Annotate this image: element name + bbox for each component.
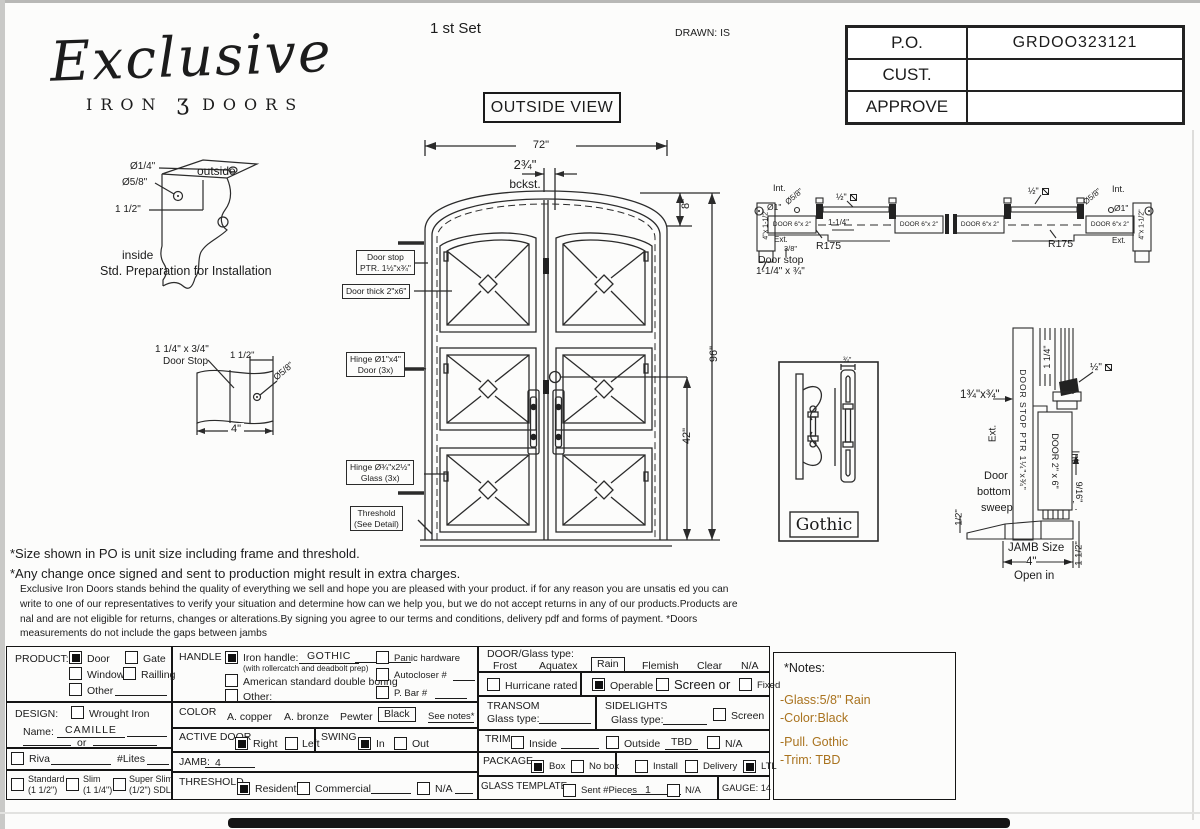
set-label: 1 st Set (430, 20, 481, 37)
transom-glass-blank (539, 713, 591, 724)
doorstop-width-label: 4" (228, 423, 244, 435)
package-label: PACKAGE (483, 755, 533, 767)
swing-label: SWING (321, 731, 357, 743)
po-label: P.O. (847, 27, 967, 59)
panic-option: Panic hardware (394, 653, 460, 664)
approve-label: APPROVE (847, 91, 967, 123)
super-slim-checkbox (113, 778, 126, 791)
product-other-option: Other (87, 685, 113, 697)
glass-type-section: DOOR/Glass type: Frost Aquatex Rain Flem… (478, 646, 770, 672)
trim-outside-checkbox (606, 736, 619, 749)
riva-blank (51, 754, 111, 765)
super-slim-option: Super Slim (129, 774, 173, 784)
trim-na-checkbox (707, 736, 720, 749)
threshold-section: THRESHOLD Residential Commercial N/A (172, 772, 478, 800)
threshold-callout: Threshold(See Detail) (350, 506, 403, 531)
package-nobox-checkbox (571, 760, 584, 773)
plan-doorstop-label-2: 1-1/4" x ¾" (756, 266, 805, 277)
operable-checkbox (592, 678, 605, 691)
cust-value (967, 59, 1183, 91)
operable-section: Operable Screen or Fixed (581, 672, 770, 696)
lites-label: #Lites (117, 753, 145, 765)
autocloser-option: Autocloser # (394, 670, 447, 681)
product-gate-option: Gate (143, 653, 166, 665)
plan-door-box-3: DOOR 6"x 2" (956, 221, 1004, 228)
jamb-int-label: Int. (1070, 445, 1081, 471)
trim-outside-value: TBD (665, 736, 698, 750)
jamb-dim-134: 1¾"x¾" (960, 389, 1000, 401)
sidelights-screen-option: Screen (731, 710, 764, 722)
handle-section: HANDLE Iron handle: GOTHIC (with rollerc… (172, 646, 478, 702)
threshold-na-blank (455, 783, 473, 794)
transom-label: TRANSOM (487, 700, 540, 712)
pbar-checkbox (376, 686, 389, 699)
hinge-door-callout: Hinge Ø1"x4"Door (3x) (346, 352, 405, 377)
commercial-blank (371, 783, 411, 794)
color-section: COLOR A. copper A. bronze Pewter Black S… (172, 702, 478, 728)
doorstop-name-label: Door Stop (163, 356, 208, 367)
hurricane-checkbox (487, 678, 500, 691)
standard-checkbox (11, 778, 24, 791)
trim-inside-checkbox (511, 736, 524, 749)
or-dash-right (93, 735, 157, 746)
handle-label: HANDLE (179, 651, 222, 663)
delivery-checkbox (685, 760, 698, 773)
standard-sub: (1 1/2") (28, 785, 57, 795)
jamb-strip-label: DOOR STOP PTR 1¼"x¾" (1018, 330, 1028, 530)
trim-na-option: N/A (725, 738, 743, 750)
active-left-checkbox (285, 737, 298, 750)
corner-outside-label: outside (197, 164, 236, 178)
corner-dia-fiveeighths: Ø5/8" (122, 177, 147, 188)
cust-label: CUST. (847, 59, 967, 91)
slim-option: Slim (83, 774, 101, 784)
glass-flemish-option: Flemish (642, 660, 679, 672)
door-stop-callout: Door stopPTR. 1½"x¾" (356, 250, 415, 275)
gauge-value: GAUGE: 14 (722, 783, 771, 793)
install-option: Install (653, 761, 678, 772)
glass-type-label: DOOR/Glass type: (487, 648, 574, 660)
po-value: GRDOO323121 (967, 27, 1183, 59)
swing-out-checkbox (394, 737, 407, 750)
sent-pieces-option: Sent #Pieces (581, 785, 637, 796)
trim-inside-option: Inside (529, 738, 557, 750)
product-other-checkbox (69, 683, 82, 696)
design-section: DESIGN: Wrought Iron Name: CAMILLE or (6, 702, 172, 748)
active-right-checkbox (235, 737, 248, 750)
iron-handle-value: GOTHIC (299, 650, 359, 664)
hurricane-section: Hurricane rated (478, 672, 581, 696)
product-label: PRODUCT: (15, 653, 69, 665)
operable-option: Operable (610, 680, 653, 692)
grid-style-section: Standard (1 1/2") Slim (1 1/4") Super Sl… (6, 770, 172, 800)
approve-value (967, 91, 1183, 123)
screen-or-option: Screen or (674, 677, 730, 692)
door-width-dim: 72" (516, 139, 566, 151)
filled-square-icon (1105, 364, 1112, 371)
color-selected-value: Black (378, 707, 416, 722)
jamb-size-label-3: Open in (1014, 570, 1054, 582)
standard-option: Standard (28, 774, 65, 784)
logo-word-doors: DOORS (202, 95, 304, 114)
disclaimer-body: Exclusive Iron Doors stands behind the q… (20, 583, 750, 642)
product-section: PRODUCT: Door Gate Window Railling Other (6, 646, 172, 702)
filled-square-icon (850, 194, 857, 201)
disclaimer-line-1: *Size shown in PO is unit size including… (10, 546, 360, 561)
notes-line-color: -Color:Black (780, 711, 848, 725)
gothic-handle-dim: ¾" (843, 357, 851, 364)
door-handle-dim: 42" (681, 419, 693, 453)
slim-sub: (1 1/4") (83, 785, 112, 795)
pbar-blank (435, 688, 467, 699)
slim-checkbox (66, 778, 79, 791)
delivery-section: Install Delivery LTL (616, 752, 770, 776)
autocloser-blank (453, 670, 475, 681)
sent-pieces-checkbox (563, 784, 576, 797)
handle-other-checkbox (225, 689, 238, 702)
plan-ext-right: Ext. (1112, 236, 1126, 245)
glass-template-section: GLASS TEMPLATE Sent #Pieces 1 N/A (478, 776, 718, 800)
product-gate-checkbox (125, 651, 138, 664)
glass-na-option: N/A (741, 660, 759, 672)
threshold-na-option: N/A (435, 783, 453, 795)
glass-frost-option: Frost (493, 660, 517, 672)
plan-r175-right: R175 (1048, 238, 1073, 250)
corner-inside-label: inside (122, 248, 153, 262)
template-na-option: N/A (685, 785, 701, 796)
outside-view-title: OUTSIDE VIEW (483, 92, 621, 123)
design-wrought-checkbox (71, 706, 84, 719)
design-label: DESIGN: (15, 708, 58, 720)
commercial-checkbox (297, 782, 310, 795)
design-wrought-option: Wrought Iron (89, 708, 150, 720)
jamb-ext-label: Ext. (988, 421, 999, 447)
glass-clear-option: Clear (697, 660, 722, 672)
scanned-order-sheet: Exclusive IRON ʒ DOORS 1 st Set DRAWN: I… (0, 0, 1200, 829)
package-nobox-option: No box (589, 761, 619, 772)
plan-dim-114: 1-1/4" (828, 218, 849, 227)
package-section: PACKAGE Box No box (478, 752, 616, 776)
product-door-checkbox (69, 651, 82, 664)
color-copper-option: A. copper (227, 711, 272, 723)
glass-aquatex-option: Aquatex (539, 660, 578, 672)
scan-shadow-bar (228, 818, 1010, 828)
notes-line-trim: -Trim: TBD (780, 753, 840, 767)
plan-r175-left: R175 (816, 240, 841, 252)
swing-section: SWING In Out (315, 728, 478, 752)
door-top-dim: 8" (680, 192, 692, 216)
commercial-option: Commercial (315, 783, 371, 795)
trim-label: TRIM (485, 733, 511, 745)
scan-edge-top (0, 0, 1200, 3)
company-logo: Exclusive IRON ʒ DOORS (50, 25, 320, 120)
color-pewter-option: Pewter (340, 711, 373, 723)
package-box-option: Box (549, 761, 565, 772)
fixed-checkbox (739, 678, 752, 691)
door-height-dim: 96" (708, 337, 720, 371)
product-other-blank (115, 685, 167, 696)
threshold-na-checkbox (417, 782, 430, 795)
handle-other-blank (275, 691, 381, 702)
jamb-dim-114: 1 1/4" (1042, 340, 1052, 374)
plan-int-left: Int. (773, 183, 786, 193)
iron-handle-option: Iron handle: (243, 652, 298, 664)
gothic-caption: Gothic (790, 515, 858, 535)
sweep-label-3: sweep (981, 502, 1013, 514)
jamb-row-blank (205, 757, 255, 768)
active-right-option: Right (253, 738, 278, 750)
plan-ext-left: Ext. (774, 235, 788, 244)
plan-half-left: ½" (836, 192, 857, 202)
product-door-option: Door (87, 653, 110, 665)
plan-half-right: ½" (1028, 186, 1049, 196)
scan-edge-left (0, 0, 5, 829)
trim-section: TRIM Inside Outside TBD N/A (478, 730, 770, 752)
trim-outside-option: Outside (624, 738, 660, 750)
template-na-checkbox (667, 784, 680, 797)
notes-line-glass: -Glass:5/8" Rain (780, 693, 871, 707)
iron-handle-checkbox (225, 651, 238, 664)
corner-dim-one-half: 1 1/2" (115, 204, 141, 215)
hurricane-option: Hurricane rated (505, 680, 577, 692)
american-boring-checkbox (225, 674, 238, 687)
doorstop-dim-one-half: 1 1/2" (230, 350, 255, 361)
jamb-size-label-1: JAMB Size (1008, 542, 1064, 554)
trim-inside-blank (561, 738, 599, 749)
jamb-door-box-label: DOOR 2" x 6" (1050, 413, 1060, 509)
lites-blank (147, 754, 169, 765)
residential-checkbox (237, 782, 250, 795)
install-checkbox (635, 760, 648, 773)
plan-jamb-right: 4"x 1-1/2" (1139, 201, 1146, 249)
color-label: COLOR (179, 706, 216, 718)
filled-square-icon (1042, 188, 1049, 195)
plan-door-box-4: DOOR 6"x 2" (1086, 221, 1134, 228)
sidelights-section: SIDELIGHTS Glass type: Screen (596, 696, 770, 730)
jamb-dim-1half: 1 1/2" (1074, 537, 1085, 571)
jamb-size-label-2: 4" (1026, 556, 1036, 568)
logo-word-iron: IRON (86, 95, 163, 114)
scan-edge-right (1192, 130, 1194, 820)
jamb-dim-916: 9/16" (1074, 475, 1084, 509)
autocloser-checkbox (376, 668, 389, 681)
sidelights-glass-blank (663, 714, 707, 725)
logo-flourish-icon: ʒ (177, 91, 189, 116)
screen-checkbox (656, 678, 669, 691)
plan-dia1-right: Ø1" (1114, 203, 1128, 213)
product-window-checkbox (69, 667, 82, 680)
iron-handle-sub: (with rollercatch and deadbolt prep) (243, 664, 368, 673)
jamb-half-label: ½" (1090, 362, 1112, 373)
scan-line-bottom (0, 812, 1200, 814)
sidelights-glass-type-label: Glass type: (611, 714, 664, 726)
or-dash-left (23, 735, 71, 746)
product-railing-option: Railling (141, 669, 175, 681)
threshold-label: THRESHOLD (179, 776, 244, 788)
plan-door-box-1: DOOR 6"x 2" (768, 221, 816, 228)
po-table: P.O. GRDOO323121 CUST. APPROVE (845, 25, 1185, 125)
plan-doorstop-label-1: Door stop (758, 254, 804, 266)
notes-line-pull: -Pull. Gothic (780, 735, 848, 749)
corner-dia-quarter: Ø1/4" (130, 161, 155, 172)
product-railing-checkbox (123, 667, 136, 680)
door-backset-sub: bckst. (495, 177, 555, 191)
sweep-label-2: bottom (977, 486, 1011, 498)
sweep-label-1: Door (984, 470, 1008, 482)
gauge-section: GAUGE: 14 (718, 776, 770, 800)
drawn-by-label: DRAWN: IS (675, 27, 730, 39)
american-boring-option: American standard double boring (243, 676, 398, 688)
doorstop-size-label: 1 1/4" x 3/4" (155, 344, 209, 355)
glass-selected-value: Rain (591, 657, 625, 672)
plan-int-right: Int. (1112, 184, 1125, 194)
riva-label: Riva (29, 753, 50, 765)
plan-dim-38: 3/8" (784, 244, 797, 253)
swing-in-option: In (376, 738, 385, 750)
see-notes-link: See notes* (428, 711, 474, 723)
swing-in-checkbox (358, 737, 371, 750)
active-door-section: ACTIVE DOOR Right Left (172, 728, 315, 752)
transom-section: TRANSOM Glass type: (478, 696, 596, 730)
sidelights-screen-checkbox (713, 708, 726, 721)
pbar-option: P. Bar # (394, 688, 427, 699)
hinge-glass-callout: Hinge Ø¾"x2½"Glass (3x) (346, 460, 414, 485)
glass-template-label: GLASS TEMPLATE (481, 781, 567, 792)
super-slim-sub: (1/2") SDL (129, 785, 171, 795)
package-box-checkbox (531, 760, 544, 773)
logo-script-text: Exclusive (49, 20, 321, 93)
jamb-row-section: JAMB: 4 (172, 752, 478, 772)
swing-out-option: Out (412, 738, 429, 750)
color-bronze-option: A. bronze (284, 711, 329, 723)
notes-title: *Notes: (784, 661, 825, 675)
disclaimer-line-2: *Any change once signed and sent to prod… (10, 566, 460, 581)
door-backset-dim: 2¾" (495, 157, 555, 172)
sidelights-label: SIDELIGHTS (605, 700, 667, 712)
riva-section: Riva #Lites (6, 748, 172, 770)
notes-section: *Notes: -Glass:5/8" Rain -Color:Black -P… (773, 652, 956, 800)
delivery-option: Delivery (703, 761, 737, 772)
plan-door-box-2: DOOR 6"x 2" (895, 221, 943, 228)
panic-checkbox (376, 651, 389, 664)
corner-caption: Std. Preparation for Installation (100, 264, 272, 278)
door-thickness-callout: Door thick 2"x6" (342, 284, 410, 299)
product-window-option: Window (87, 669, 124, 681)
transom-glass-type-label: Glass type: (487, 713, 540, 725)
ltl-checkbox (743, 760, 756, 773)
jamb-dim-half-bottom: 1/2" (954, 503, 965, 533)
riva-checkbox (11, 752, 24, 765)
